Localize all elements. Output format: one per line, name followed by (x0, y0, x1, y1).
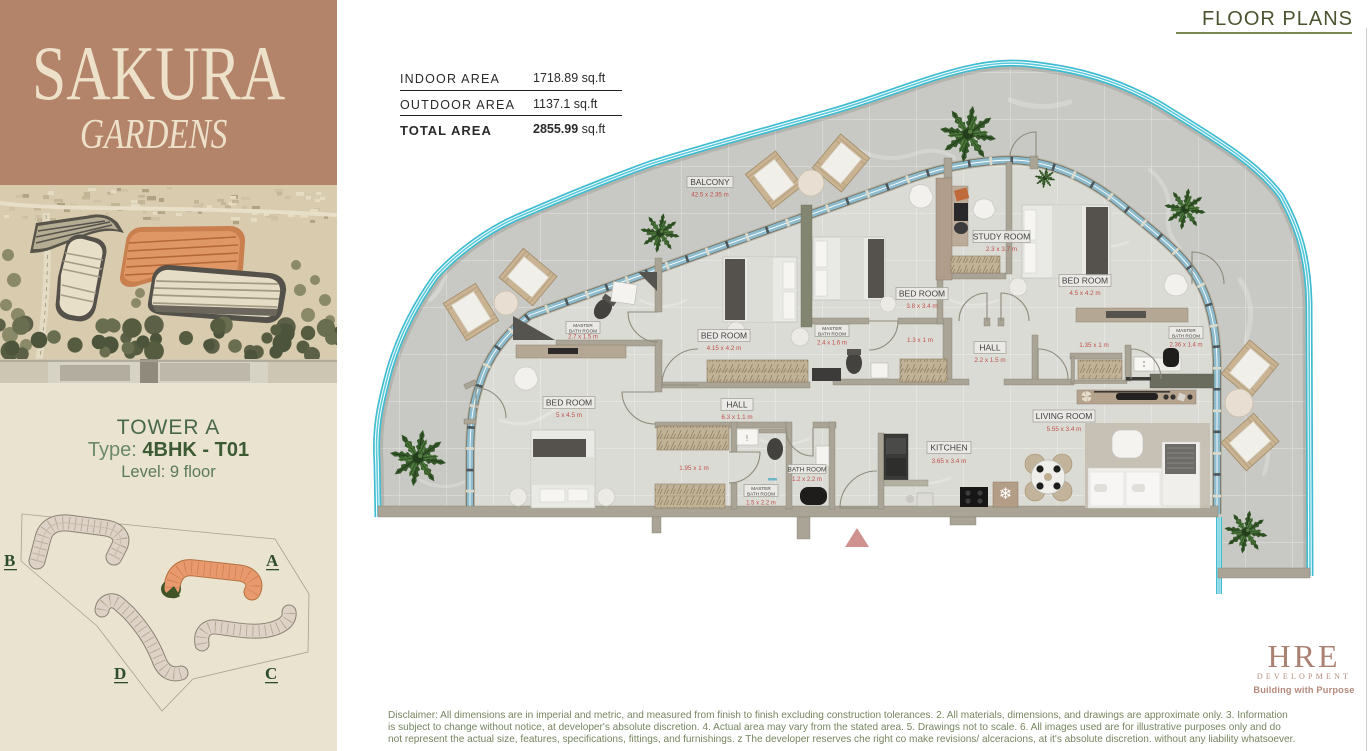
svg-text:MASTER: MASTER (822, 326, 842, 331)
svg-text:MASTER: MASTER (573, 323, 593, 328)
svg-text:MASTER: MASTER (1176, 328, 1196, 333)
svg-text:2.2 x 1.5 m: 2.2 x 1.5 m (974, 357, 1005, 364)
svg-text:HALL: HALL (726, 400, 748, 410)
svg-text:3.65 x 3.4 m: 3.65 x 3.4 m (932, 458, 967, 465)
svg-text:BED ROOM: BED ROOM (1062, 276, 1108, 286)
svg-text:BED ROOM: BED ROOM (701, 331, 747, 341)
svg-text:2.36 x 1.4 m: 2.36 x 1.4 m (1169, 343, 1202, 349)
svg-text:B: B (4, 551, 15, 570)
svg-text:BATH ROOM: BATH ROOM (818, 331, 846, 336)
svg-text:1.2 x 2.2 m: 1.2 x 2.2 m (792, 477, 822, 483)
svg-text:6.3 x 1.1 m: 6.3 x 1.1 m (721, 414, 752, 421)
svg-text:LIVING ROOM: LIVING ROOM (1036, 411, 1093, 421)
svg-text:5.55 x 3.4 m: 5.55 x 3.4 m (1047, 426, 1082, 433)
svg-text:1.5 x 2.2 m: 1.5 x 2.2 m (746, 501, 776, 507)
svg-text:!: ! (746, 434, 748, 443)
svg-text:GARDENS: GARDENS (80, 111, 227, 158)
svg-text:BATH ROOM: BATH ROOM (747, 491, 775, 496)
svg-text:5 x 4.5 m: 5 x 4.5 m (556, 412, 582, 419)
svg-text:STUDY ROOM: STUDY ROOM (973, 232, 1030, 242)
svg-text:BATH ROOM: BATH ROOM (569, 328, 597, 333)
svg-text:A: A (266, 551, 279, 570)
svg-text:MASTER: MASTER (751, 486, 771, 491)
svg-text:4.15 x 4.2 m: 4.15 x 4.2 m (707, 345, 742, 352)
svg-text:BED ROOM: BED ROOM (546, 398, 592, 408)
svg-text:4.5 x 4.2 m: 4.5 x 4.2 m (1069, 290, 1100, 297)
svg-text:C: C (265, 664, 277, 683)
svg-text:1.35 x 1 m: 1.35 x 1 m (1079, 342, 1108, 349)
svg-text:KITCHEN: KITCHEN (930, 443, 967, 453)
svg-text:1.3 x 1 m: 1.3 x 1 m (907, 337, 933, 344)
svg-text:❄: ❄ (999, 486, 1012, 503)
svg-text:1.95 x 1 m: 1.95 x 1 m (679, 465, 708, 472)
svg-text:2.4 x 1.6 m: 2.4 x 1.6 m (817, 341, 847, 347)
svg-text:BATH ROOM: BATH ROOM (788, 467, 827, 474)
svg-text:3.8 x 3.4 m: 3.8 x 3.4 m (906, 303, 937, 310)
svg-text:D: D (114, 664, 126, 683)
svg-text:42.5 x 2.35 m: 42.5 x 2.35 m (691, 192, 729, 199)
svg-text:2.7 x 1.5 m: 2.7 x 1.5 m (568, 335, 598, 341)
svg-text:2.3 x 3.7 m: 2.3 x 3.7 m (986, 246, 1017, 253)
svg-text:SAKURA: SAKURA (32, 32, 285, 117)
svg-text:BALCONY: BALCONY (690, 178, 730, 187)
svg-text:BED ROOM: BED ROOM (899, 289, 945, 299)
svg-text:BATH ROOM: BATH ROOM (1172, 333, 1200, 338)
svg-text:HALL: HALL (979, 343, 1001, 353)
